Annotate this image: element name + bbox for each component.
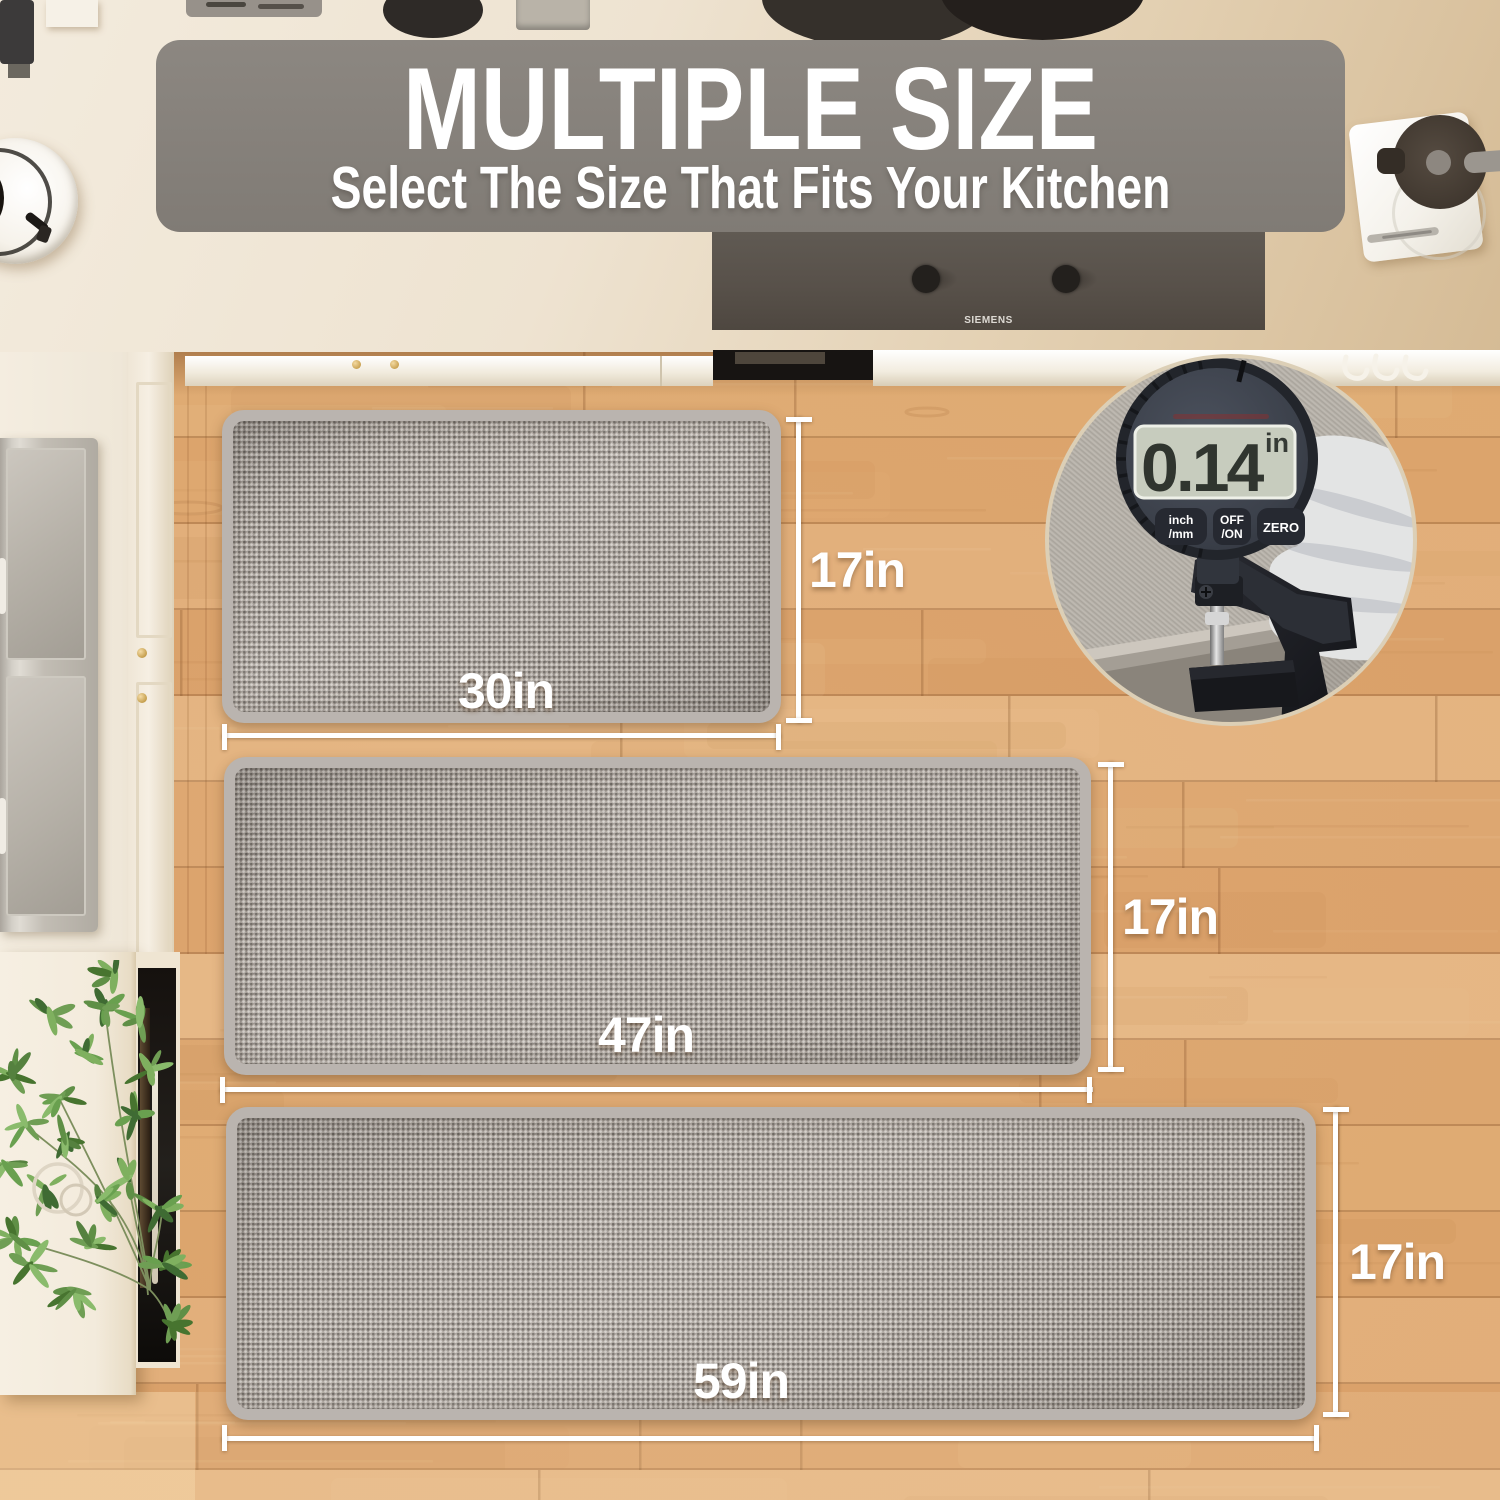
svg-text:OFF: OFF: [1220, 513, 1244, 527]
svg-text:inch: inch: [1169, 513, 1194, 527]
svg-text:ZERO: ZERO: [1263, 520, 1299, 535]
svg-text:in: in: [1265, 428, 1289, 458]
svg-text:/mm: /mm: [1169, 527, 1194, 541]
svg-text:/ON: /ON: [1221, 527, 1242, 541]
svg-text:0.14: 0.14: [1141, 430, 1265, 506]
